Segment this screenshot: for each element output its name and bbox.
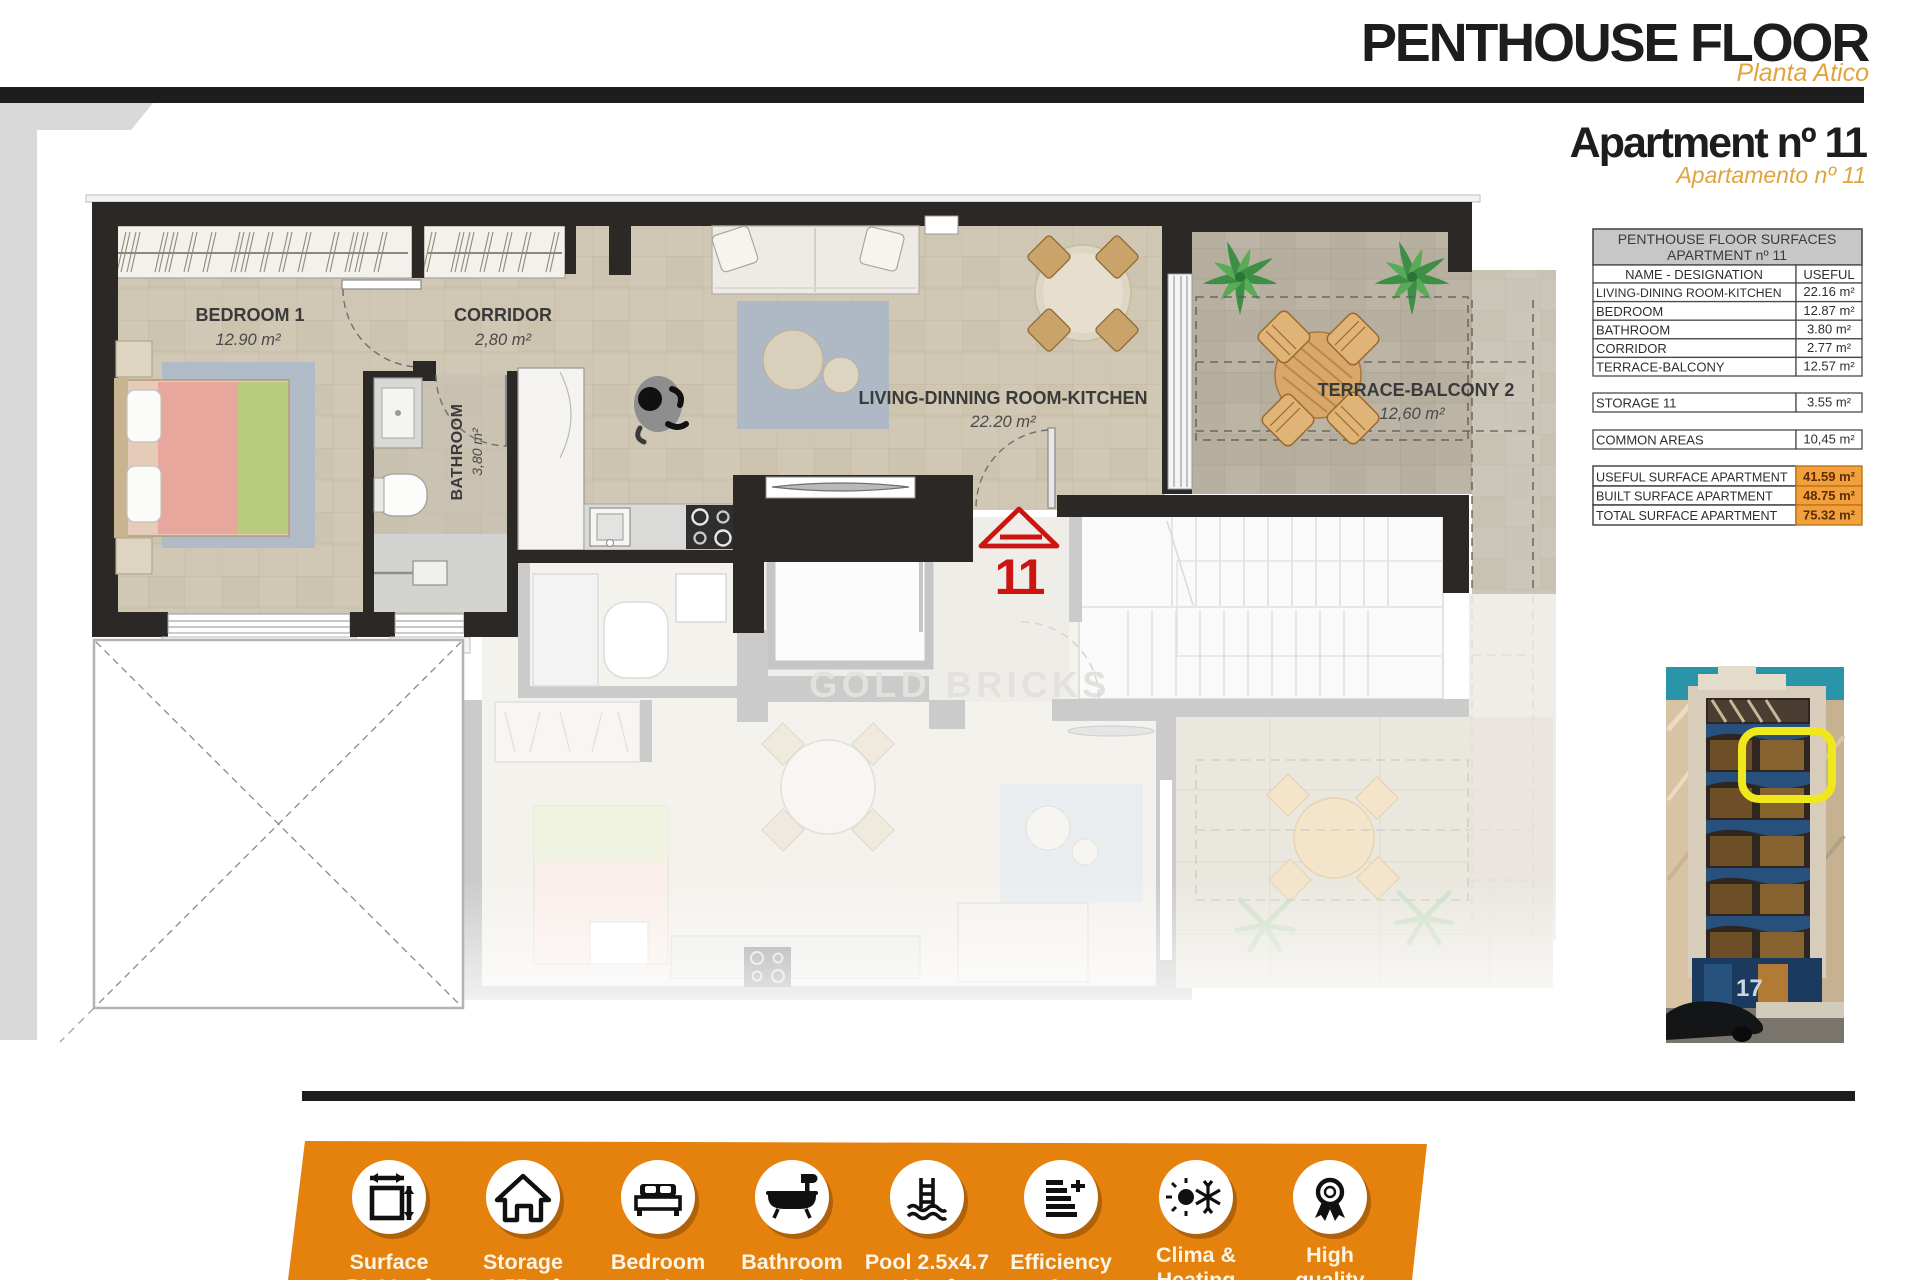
- svg-text:12.90 m²: 12.90 m²: [215, 331, 281, 349]
- svg-text:BATHROOM: BATHROOM: [1596, 323, 1670, 338]
- svg-text:TERRACE-BALCONY 2: TERRACE-BALCONY 2: [1318, 380, 1515, 400]
- svg-text:BEDROOM: BEDROOM: [1596, 304, 1663, 319]
- svg-text:3.80 m²: 3.80 m²: [1807, 322, 1852, 337]
- svg-text:STORAGE 11: STORAGE 11: [1596, 396, 1676, 411]
- svg-text:2.55 m²: 2.55 m²: [486, 1275, 560, 1280]
- svg-text:12,60 m²: 12,60 m²: [1379, 405, 1445, 423]
- svg-text:APARTMENT nº 11: APARTMENT nº 11: [1667, 247, 1787, 263]
- svg-text:PENTHOUSE FLOOR SURFACES: PENTHOUSE FLOOR SURFACES: [1618, 231, 1837, 247]
- svg-text:75.32 m²: 75.32 m²: [1803, 508, 1856, 523]
- svg-text:50.20 m²: 50.20 m²: [346, 1275, 432, 1280]
- svg-text:Bedroom: Bedroom: [611, 1250, 705, 1274]
- svg-text:x 1: x 1: [777, 1275, 807, 1280]
- svg-text:Clima &: Clima &: [1156, 1243, 1236, 1267]
- svg-text:LIVING-DINING ROOM-KITCHEN: LIVING-DINING ROOM-KITCHEN: [1596, 286, 1782, 300]
- svg-text:Apartamento nº 11: Apartamento nº 11: [1674, 162, 1866, 188]
- svg-text:TOTAL SURFACE APARTMENT: TOTAL SURFACE APARTMENT: [1596, 509, 1778, 523]
- svg-text:2,80 m²: 2,80 m²: [474, 331, 531, 349]
- svg-text:Bathroom: Bathroom: [741, 1250, 843, 1274]
- svg-text:12.87 m²: 12.87 m²: [1803, 303, 1855, 318]
- svg-text:USEFUL: USEFUL: [1803, 267, 1854, 282]
- svg-text:COMMON AREAS: COMMON AREAS: [1596, 433, 1704, 448]
- svg-text:17: 17: [1736, 975, 1763, 1002]
- svg-text:3.55 m²: 3.55 m²: [1807, 395, 1852, 410]
- svg-text:NAME - DESIGNATION: NAME - DESIGNATION: [1625, 267, 1763, 282]
- svg-text:Efficiency: Efficiency: [1010, 1250, 1112, 1274]
- svg-text:22.16 m²: 22.16 m²: [1803, 284, 1855, 299]
- svg-text:10,45 m²: 10,45 m²: [1803, 432, 1855, 447]
- svg-text:Apartment nº 11: Apartment nº 11: [1570, 119, 1867, 167]
- svg-text:22.20 m²: 22.20 m²: [969, 413, 1036, 431]
- svg-text:LIVING-DINNING ROOM-KITCHEN: LIVING-DINNING ROOM-KITCHEN: [859, 388, 1148, 408]
- svg-text:GOLD BRICKS: GOLD BRICKS: [809, 664, 1111, 705]
- svg-text:48.75 m²: 48.75 m²: [1803, 488, 1856, 503]
- svg-text:Surface: Surface: [350, 1250, 429, 1274]
- svg-text:CORRIDOR: CORRIDOR: [1596, 341, 1667, 356]
- svg-text:Storage: Storage: [483, 1250, 563, 1274]
- svg-text:2.77 m²: 2.77 m²: [1807, 340, 1852, 355]
- svg-text:41.59 m²: 41.59 m²: [1803, 469, 1856, 484]
- svg-text:USEFUL SURFACE APARTMENT: USEFUL SURFACE APARTMENT: [1596, 471, 1788, 485]
- svg-text:11: 11: [995, 549, 1045, 605]
- svg-text:CORRIDOR: CORRIDOR: [454, 305, 552, 325]
- svg-text:High: High: [1306, 1243, 1354, 1267]
- svg-text:3,80 m²: 3,80 m²: [469, 427, 485, 476]
- svg-text:BATHROOM: BATHROOM: [449, 403, 466, 500]
- svg-text:A+: A+: [1047, 1275, 1075, 1280]
- svg-text:12.57 m²: 12.57 m²: [1803, 359, 1855, 374]
- svg-text:BUILT SURFACE APARTMENT: BUILT SURFACE APARTMENT: [1596, 490, 1773, 504]
- svg-text:Heating: Heating: [1157, 1268, 1236, 1280]
- svg-text:x 1: x 1: [643, 1275, 673, 1280]
- svg-text:Planta Atico: Planta Atico: [1737, 59, 1870, 87]
- svg-text:quality: quality: [1295, 1268, 1364, 1280]
- svg-text:BEDROOM 1: BEDROOM 1: [195, 305, 304, 325]
- svg-text:TERRACE-BALCONY: TERRACE-BALCONY: [1596, 360, 1725, 375]
- svg-text:12 m²: 12 m²: [899, 1275, 955, 1280]
- svg-text:Pool 2.5x4.7: Pool 2.5x4.7: [865, 1250, 989, 1274]
